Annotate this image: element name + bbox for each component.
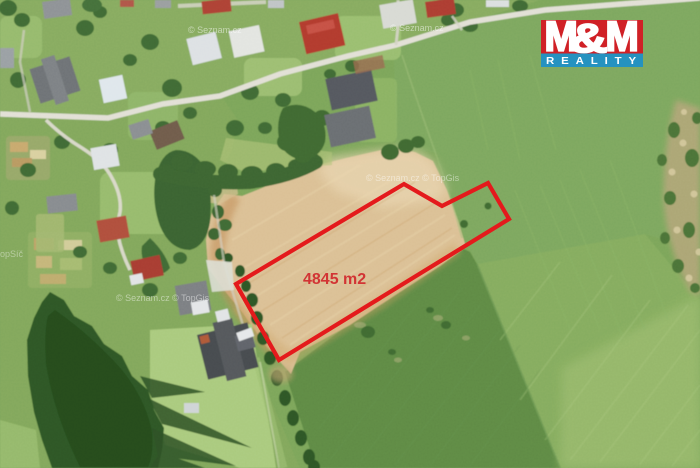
svg-text:REALITY: REALITY (546, 56, 643, 67)
svg-text:© Seznam.cz © TopGis: © Seznam.cz © TopGis (116, 293, 210, 303)
svg-text:© Seznam.cz: © Seznam.cz (390, 23, 444, 33)
svg-text:M: M (606, 13, 639, 60)
svg-text:© Seznam.cz: © Seznam.cz (188, 25, 242, 35)
svg-text:opSíč: opSíč (0, 249, 24, 259)
svg-text:© Seznam.cz © TopGis: © Seznam.cz © TopGis (366, 173, 460, 183)
svg-text:4845 m2: 4845 m2 (303, 271, 366, 288)
